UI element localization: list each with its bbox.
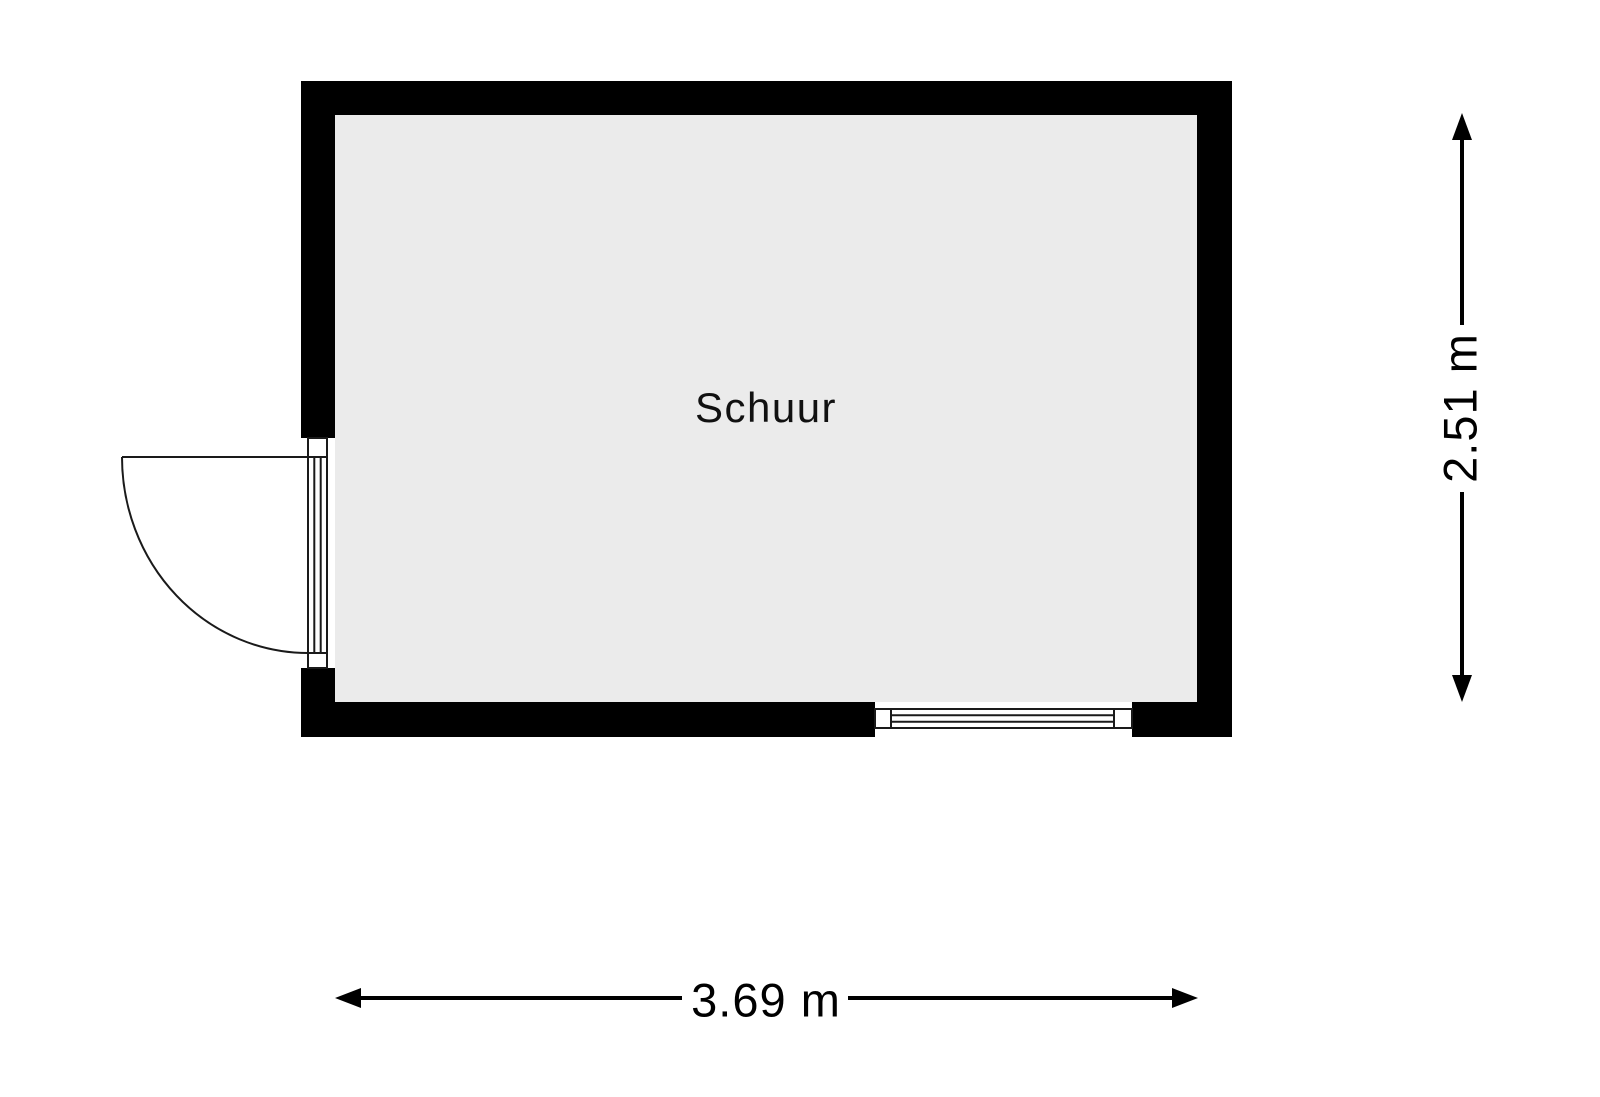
room-label: Schuur	[695, 384, 837, 432]
door-icon	[122, 438, 327, 668]
width-dimension-label: 3.69 m	[691, 973, 841, 1028]
height-dimension-label: 2.51 m	[1433, 333, 1488, 483]
door-swing-arc	[122, 457, 308, 653]
floorplan-canvas: Schuur 3.69 m 2.51 m	[0, 0, 1600, 1097]
window-opening	[875, 702, 1132, 737]
arrow-up-head	[1452, 113, 1472, 140]
arrow-right-head	[1172, 988, 1198, 1008]
arrow-left-head	[335, 988, 361, 1008]
arrow-down-head	[1452, 675, 1472, 702]
door-opening	[301, 438, 335, 668]
